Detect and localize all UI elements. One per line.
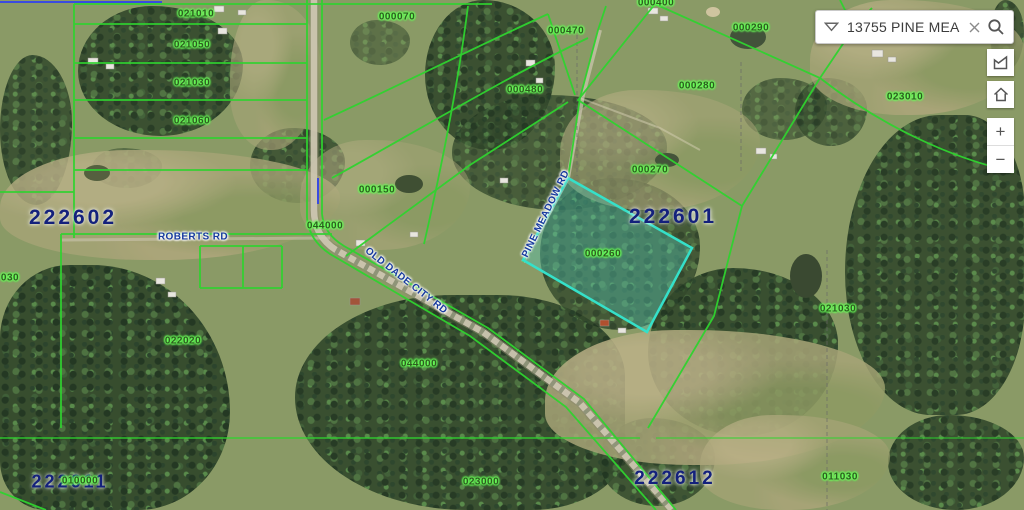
ponds — [84, 7, 822, 298]
section-lines-blue — [0, 2, 318, 204]
map-application: 2226022226012226122226110210100210500210… — [0, 0, 1024, 510]
home-icon — [992, 86, 1010, 103]
polygon-select-button[interactable] — [987, 49, 1014, 76]
search-icon — [987, 18, 1005, 36]
zoom-in-button[interactable]: + — [987, 118, 1014, 145]
polygon-select-icon — [992, 54, 1009, 71]
parcel-lines — [0, 0, 1024, 510]
search-dropdown-button[interactable] — [824, 22, 839, 32]
zoom-out-button[interactable]: − — [987, 146, 1014, 173]
selected-parcel-000260[interactable] — [523, 178, 692, 332]
search-bar — [815, 10, 1014, 44]
close-icon — [968, 21, 981, 34]
home-button[interactable] — [987, 81, 1014, 108]
chevron-down-icon — [824, 22, 839, 32]
search-clear-button[interactable] — [968, 21, 981, 34]
search-submit-button[interactable] — [987, 18, 1005, 36]
zoom-control: + − — [987, 118, 1014, 173]
search-input[interactable] — [845, 18, 962, 36]
